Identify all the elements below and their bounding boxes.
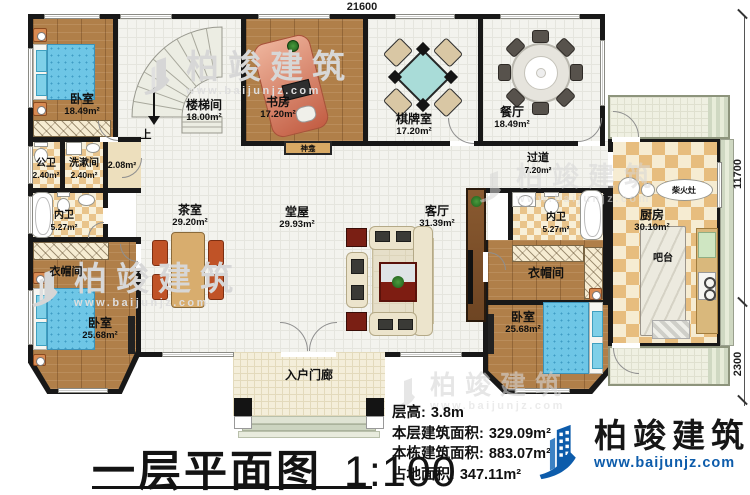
brand-site: www.baijunjz.com [594,456,750,472]
bed-pillow-zone [33,288,47,350]
room-label-study: 书房17.20m² [260,95,295,121]
toilet-tank [34,142,48,147]
room-label-cloak-left: 衣帽间 [50,266,83,279]
room-label-living: 客厅31.39m² [419,204,454,230]
room-label-corridor: 过道7.20m² [525,152,552,175]
nightstand [589,288,602,300]
sofa-pillow [378,319,393,330]
deck-bottom-stripes [708,348,728,384]
tea-chair [152,240,168,266]
stove-pot [641,183,655,197]
dimension-tick [737,9,748,20]
stat-floor-height: 层高:3.8m [392,403,551,424]
dimension-tick [737,297,748,308]
sofa-pillow [375,231,390,242]
sink [66,142,82,155]
room-label-dining: 餐厅18.49m² [494,105,529,131]
bay-window-right [515,388,570,393]
title-underline [92,486,372,489]
wood-stove-label: 柴火灶 [672,185,696,196]
bay-window-left [58,388,108,393]
dimension-right-upper: 11700 [732,144,744,204]
doormat [652,320,690,339]
room-label-tea: 茶室29.20m² [172,203,207,229]
deck-top-stripes [708,97,728,137]
window [44,14,100,19]
pillow [592,311,603,337]
tea-chair [208,274,224,300]
bathtub [580,190,603,240]
window [600,40,605,106]
dining-chair [570,64,583,81]
porch-column-base-left [234,416,252,429]
window [28,196,33,234]
bar-label: 吧台 [653,249,673,264]
pillow [36,295,47,319]
dimension-top: 21600 [330,1,394,13]
sofa-top [369,226,417,250]
brand-name: 柏竣建筑 [594,418,750,454]
brand-logo-icon [536,418,588,480]
sink [512,192,536,207]
dining-chair [498,64,511,81]
door-opening [612,137,640,142]
sofa-pillow [351,259,364,274]
tv [128,316,135,354]
up-label: 上 [141,126,152,142]
window [28,48,33,108]
dimension-right-lower: 2300 [732,334,744,394]
dining-table-center [536,68,546,78]
sink-basin [78,194,95,206]
porch-step-2 [242,424,376,431]
pillow [36,50,47,72]
plant [392,276,404,288]
stair-direction-arrow [153,86,155,116]
stat-footprint-area: 占地面积:347.11m² [392,465,551,486]
bed-pillow-zone [589,302,603,374]
stove-pot [618,177,640,199]
room-label-bedroom-br: 卧室25.68m² [505,310,540,336]
room-label-bath-right: 内卫5.27m² [543,212,570,234]
toilet-tank [57,192,70,197]
room-label-small-hall: 2.08m² [108,160,137,171]
toilet-tank [544,192,559,197]
window [400,352,462,357]
bathtub-inner [35,197,51,235]
dimension-tick [737,395,748,406]
stair-arrow-head [148,116,160,125]
room-label-kitchen: 厨房30.10m² [634,208,669,234]
bed-pillow-zone [33,44,47,100]
floor-plan-canvas: 神龛 [0,0,750,495]
bathtub-inner [584,196,601,237]
room-label-cloak-right: 衣帽间 [528,266,564,280]
sofa-pillow [351,285,364,300]
tea-chair [208,240,224,266]
brand-logo: 柏竣建筑 www.baijunjz.com [536,418,750,480]
window [717,162,722,208]
door-opening [608,152,613,186]
window [258,14,330,19]
room-label-stair: 楼梯间18.00m² [186,98,222,124]
sofa-pillow [396,231,411,242]
dining-chair [532,30,549,43]
sofa-left [346,252,368,308]
side-cabinet [346,228,367,247]
tv [468,250,473,304]
plant [471,196,482,207]
room-label-chess: 棋牌室17.20m² [396,112,432,138]
sofa-bottom [369,312,417,336]
porch-step-1 [246,416,372,424]
window [395,14,455,19]
room-label-pub-bath: 公卫2.40m² [33,158,60,180]
sink-basin [518,195,533,207]
nightstand [33,28,47,42]
nightstand [33,272,46,284]
cooktop [698,272,716,300]
room-label-wash: 洗漱间2.40m² [69,158,99,180]
nightstand [33,354,46,366]
room-label-bath-left: 内卫5.27m² [51,210,78,232]
porch-column-left [234,398,252,416]
kitchen-sink [698,232,716,258]
room-label-hall: 堂屋29.93m² [279,205,314,231]
nightstand [33,102,47,116]
stat-building-area: 本栋建筑面积:883.07m² [392,444,551,465]
side-cabinet [346,312,367,331]
pillow [36,322,47,346]
porch-floor [233,352,385,416]
stat-floor-area: 本层建筑面积:329.09m² [392,424,551,445]
pillow [592,343,603,369]
room-label-porch: 入户门廊 [285,368,333,382]
window [162,352,234,357]
burner [704,277,716,289]
shrine-label: 神龛 [301,143,316,154]
bed [543,302,589,374]
wardrobe-hatch [33,242,109,260]
stats-block: 层高:3.8m 本层建筑面积:329.09m² 本栋建筑面积:883.07m² … [392,403,551,485]
room-label-bedroom-tl: 卧室18.49m² [64,92,99,118]
burner [704,289,716,301]
plant [287,40,299,52]
room-label-bedroom-bl: 卧室25.68m² [82,316,117,342]
sink-basin [86,143,100,153]
tea-chair [152,274,168,300]
pillow [36,74,47,96]
entry-opening [281,352,336,357]
tv [488,314,494,354]
window [500,14,580,19]
dimension-line-right [744,16,745,406]
wardrobe-hatch [512,245,584,262]
window [28,290,33,345]
dining-chair [532,102,549,115]
sofa-pillow [398,319,413,330]
window [120,14,172,19]
porch-column-base-right [366,416,384,429]
porch-column-right [366,398,384,416]
tea-table [171,232,205,308]
